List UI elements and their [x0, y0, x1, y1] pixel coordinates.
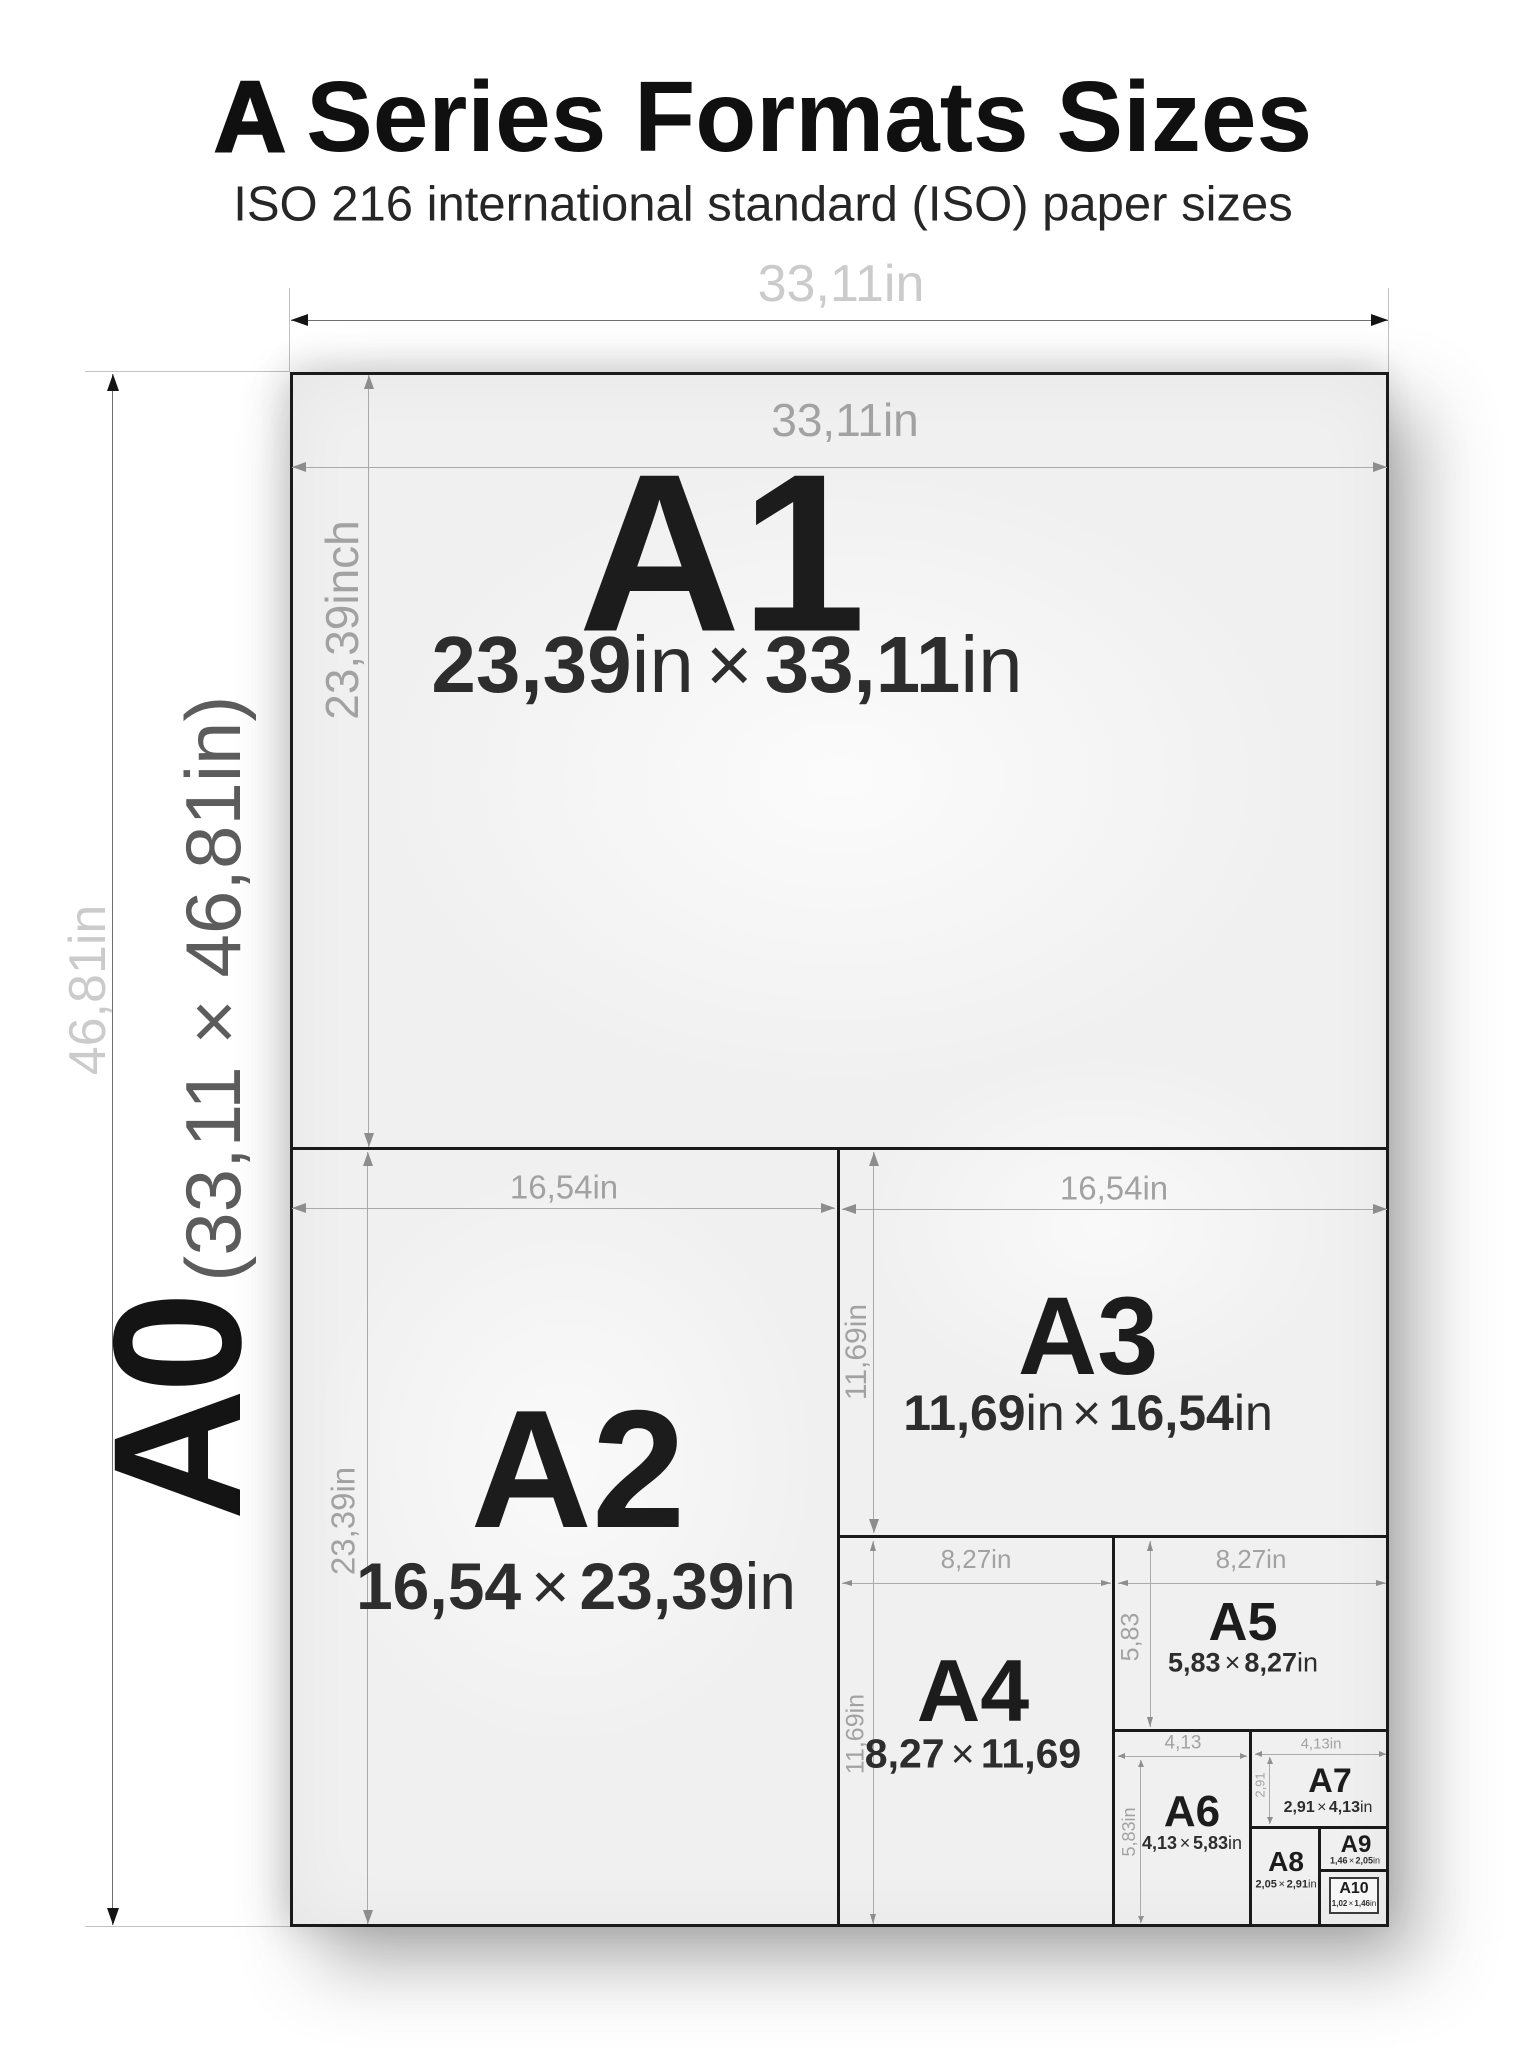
a1-dim-width: 23,39 [431, 620, 631, 709]
a5-dim-height: 8,27 [1244, 1648, 1297, 1678]
a2-dim-height-unit: in [745, 1549, 796, 1623]
a4-dim-width: 8,27 [865, 1731, 945, 1777]
times-sign: × [1279, 1879, 1285, 1891]
a9-dimensions: 1,46×2,05in [1330, 1857, 1380, 1866]
extension-line-left-top [85, 371, 290, 372]
a0-dimensions: (33,11 × 46,81in) [174, 696, 252, 1282]
a8-name: A8 [1268, 1848, 1304, 1876]
page-title-rest: Series Formats Sizes [306, 61, 1312, 173]
a5-dim-width: 5,83 [1168, 1648, 1221, 1678]
divider-a9-bottom [1321, 1869, 1389, 1872]
a10-name: A10 [1339, 1881, 1368, 1897]
a4-width-dimension-line [842, 1583, 1111, 1584]
times-sign: × [1317, 1799, 1326, 1816]
page-title-lead-letter: A [214, 61, 286, 173]
a6-height-dimension-line [1140, 1760, 1141, 1923]
a1-height-dimension-line [368, 375, 369, 1147]
a6-name: A6 [1164, 1790, 1220, 1834]
a10-dimensions: 1,02×1,46in [1332, 1900, 1376, 1908]
times-sign: × [1349, 1899, 1354, 1908]
a6-width-label: 4,13 [1165, 1734, 1202, 1753]
divider-a5-bottom [1115, 1729, 1389, 1732]
a2-dimensions: 16,54×23,39in [356, 1553, 796, 1619]
a2-dim-height: 23,39 [579, 1549, 744, 1623]
a1-dim-height: 33,11 [765, 620, 961, 709]
times-sign: × [531, 1549, 570, 1623]
a4-name: A4 [917, 1647, 1030, 1735]
times-sign: × [1349, 1856, 1354, 1866]
page-subtitle: ISO 216 international standard (ISO) pap… [233, 181, 1293, 230]
a9-dim-height: 2,05 [1355, 1856, 1373, 1866]
a6-dimensions: 4,13×5,83in [1142, 1834, 1242, 1852]
a2-dim-width: 16,54 [356, 1549, 521, 1623]
a0-caption: A0 (33,11 × 46,81in) [86, 696, 268, 1521]
a3-dimensions: 11,69in×16,54in [903, 1388, 1273, 1438]
outer-width-label: 33,11in [758, 258, 925, 310]
a5-name: A5 [1208, 1595, 1277, 1649]
a2-width-label: 16,54in [510, 1171, 618, 1204]
a3-dim-width: 11,69 [903, 1385, 1025, 1441]
a3-name: A3 [1018, 1282, 1159, 1392]
a3-dim-width-unit: in [1026, 1385, 1065, 1441]
a6-dim-height: 5,83 [1193, 1833, 1228, 1853]
a1-height-label: 23,39inch [319, 520, 365, 720]
a9-dim-height-unit: in [1373, 1856, 1380, 1866]
outer-width-dimension-line [291, 320, 1388, 321]
a1-dim-width-unit: in [632, 620, 694, 709]
a7-height-dimension-line [1269, 1757, 1270, 1824]
a4-dimensions: 8,27×11,69 [865, 1734, 1081, 1775]
times-sign: × [1072, 1385, 1101, 1441]
a8-dim-width: 2,05 [1255, 1879, 1276, 1891]
a3-dim-height-unit: in [1234, 1385, 1273, 1441]
a1-dimensions: 23,39in×33,11in [431, 625, 1022, 705]
a8-dim-height: 2,91 [1287, 1879, 1308, 1891]
a5-dimensions: 5,83×8,27in [1168, 1650, 1318, 1677]
a5-dim-height-unit: in [1297, 1648, 1318, 1678]
a5-width-label: 8,27in [1216, 1546, 1287, 1572]
a6-width-dimension-line [1118, 1756, 1247, 1757]
a2-height-dimension-line [367, 1152, 368, 1924]
a3-height-dimension-line [873, 1152, 874, 1533]
a3-width-dimension-line [842, 1209, 1387, 1210]
page-title: ASeries Formats Sizes [214, 67, 1312, 167]
a2-name: A2 [471, 1385, 686, 1553]
a7-dimensions: 2,91×4,13in [1284, 1800, 1373, 1816]
a7-dim-height-unit: in [1360, 1799, 1372, 1816]
a9-name: A9 [1341, 1833, 1372, 1857]
a8-dim-height-unit: in [1308, 1879, 1317, 1891]
times-sign: × [1180, 1833, 1191, 1853]
extension-line-left-bottom [85, 1926, 290, 1927]
a4-width-label: 8,27in [941, 1546, 1012, 1572]
a3-height-label: 11,69in [842, 1304, 872, 1400]
divider-a8-a9 [1318, 1829, 1321, 1927]
a7-dim-width: 2,91 [1284, 1799, 1315, 1816]
times-sign: × [706, 620, 753, 709]
a7-name: A7 [1308, 1764, 1351, 1798]
a8-dimensions: 2,05×2,91in [1255, 1880, 1316, 1891]
a7-width-label: 4,13in [1301, 1737, 1342, 1752]
a9-dim-width: 1,46 [1330, 1856, 1348, 1866]
a7-width-dimension-line [1255, 1754, 1386, 1755]
times-sign: × [951, 1731, 975, 1777]
a5-height-dimension-line [1150, 1541, 1151, 1727]
a10-dim-height-unit: in [1370, 1899, 1376, 1908]
times-sign: × [1225, 1648, 1241, 1678]
a0-name: A0 [86, 1296, 268, 1521]
extension-line-top-left [289, 288, 290, 372]
a5-height-label: 5,83 [1119, 1613, 1144, 1662]
a1-dim-height-unit: in [960, 620, 1022, 709]
divider-a2-a3 [837, 1150, 840, 1927]
a2-width-dimension-line [292, 1208, 835, 1209]
a6-height-label: 5,83in [1120, 1807, 1138, 1856]
a3-width-label: 16,54in [1060, 1172, 1168, 1205]
a10-dim-width: 1,02 [1332, 1899, 1348, 1908]
a3-dim-height: 16,54 [1109, 1385, 1234, 1441]
divider-a4-a5 [1112, 1538, 1115, 1927]
a5-width-dimension-line [1118, 1583, 1386, 1584]
a7-height-label: 2,91 [1254, 1772, 1267, 1797]
infographic-a-series-paper-sizes: ASeries Formats Sizes ISO 216 internatio… [0, 0, 1526, 2048]
a6-dim-width: 4,13 [1142, 1833, 1177, 1853]
a10-dim-height: 1,46 [1354, 1899, 1370, 1908]
a6-dim-height-unit: in [1228, 1833, 1242, 1853]
a2-height-label: 23,39in [327, 1467, 360, 1575]
a4-dim-height: 11,69 [981, 1731, 1081, 1777]
extension-line-top-right [1388, 288, 1389, 372]
divider-a6-a7 [1249, 1732, 1252, 1927]
a7-dim-height: 4,13 [1329, 1799, 1360, 1816]
